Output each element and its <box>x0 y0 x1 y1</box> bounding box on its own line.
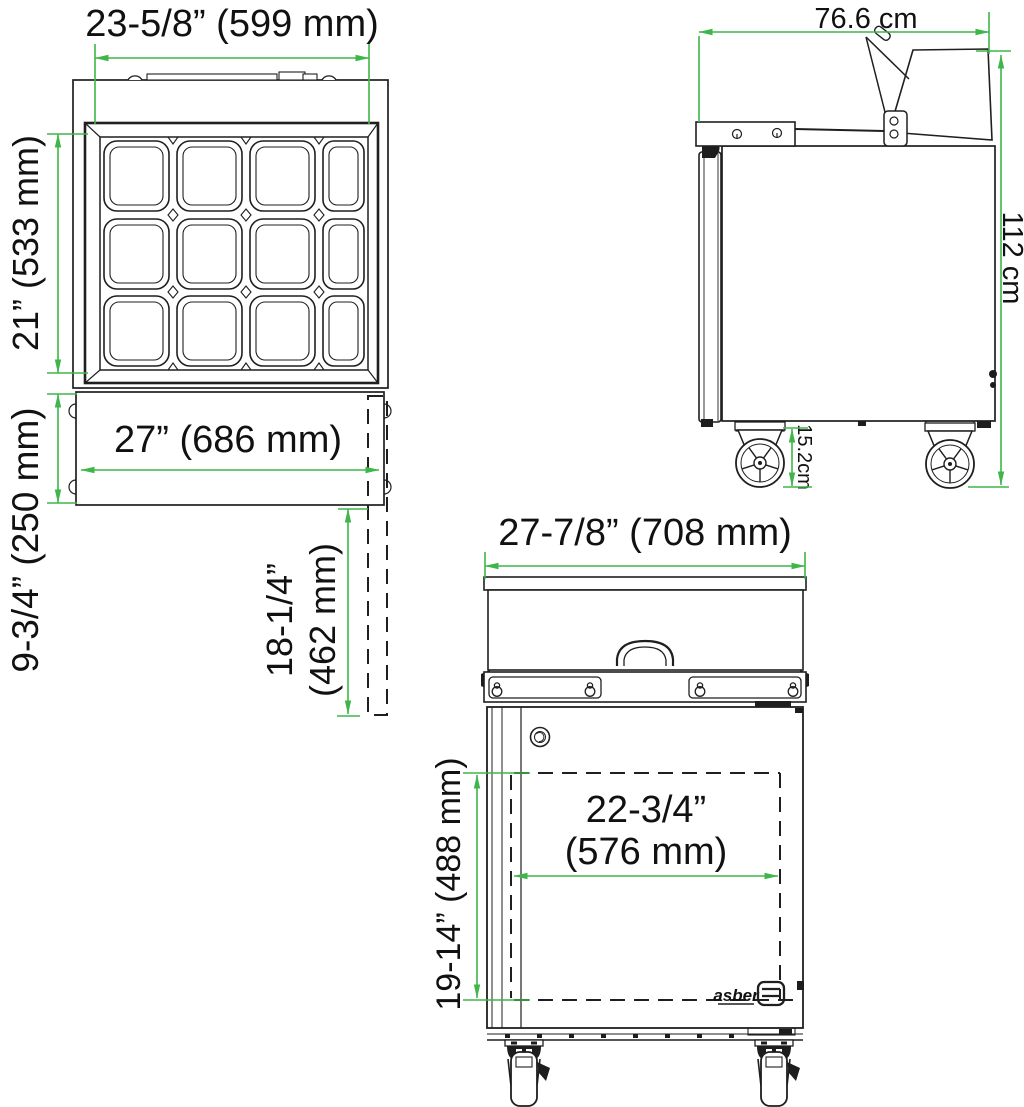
drawing-canvas: 23-5/8” (599 mm) 21” (533 mm) 9-3/4” (25… <box>0 0 1024 1107</box>
pan-frame <box>85 123 378 383</box>
caster-wheel <box>505 1040 550 1106</box>
caster-wheel <box>735 422 785 487</box>
front-view: asber 27-7/8” (708 mm) 22-3/4” (576 mm) … <box>430 512 809 1106</box>
dim-label-cutting-board-depth-1: 18-1/4” <box>259 563 300 677</box>
side-worktop <box>696 122 795 146</box>
open-lid <box>866 25 992 146</box>
dim-label-overall-depth: 76.6 cm <box>814 3 917 35</box>
lid-latch <box>279 72 305 80</box>
lid-face <box>488 590 803 670</box>
lid-top-strip <box>484 577 806 590</box>
caster-wheel <box>755 1040 800 1106</box>
side-view: 76.6 cm 112 cm 15.2cm <box>696 3 1024 490</box>
dim-label-cutting-board-depth-2: (462 mm) <box>302 543 343 697</box>
dim-label-door-height: 19-14” (488 mm) <box>430 757 468 1010</box>
mounting-rail <box>484 672 806 708</box>
side-view-body <box>722 146 995 421</box>
lid-hinge-bar <box>147 74 277 80</box>
top-view: 23-5/8” (599 mm) 21” (533 mm) 9-3/4” (25… <box>5 3 391 716</box>
side-clip-icon <box>990 382 996 388</box>
dimension-drawing: 23-5/8” (599 mm) 21” (533 mm) 9-3/4” (25… <box>0 0 1024 1107</box>
door-foot <box>701 419 713 427</box>
dim-label-door-width-2: (576 mm) <box>565 831 728 873</box>
hinge-bump-left <box>128 76 142 80</box>
dim-label-front-width: 27-7/8” (708 mm) <box>498 512 792 554</box>
dim-label-door-width-1: 22-3/4” <box>586 789 706 831</box>
hinge-bump-right <box>322 76 336 80</box>
lid-latch-end <box>303 74 317 80</box>
dim-label-overall-width: 23-5/8” (599 mm) <box>85 3 379 45</box>
caster-wheel <box>925 423 975 488</box>
dim-label-body-width: 27” (686 mm) <box>114 419 342 461</box>
lid-base-line <box>795 129 884 131</box>
dim-label-front-section-depth: 9-3/4” (250 mm) <box>5 407 46 672</box>
front-base <box>487 1028 803 1040</box>
brand-logo-text: asber <box>713 986 760 1005</box>
lid-hinge-bracket <box>884 111 907 146</box>
side-clip-icon <box>989 370 997 378</box>
dim-label-caster-height: 15.2cm <box>793 424 815 490</box>
dim-label-pan-area-depth: 21” (533 mm) <box>5 135 46 351</box>
